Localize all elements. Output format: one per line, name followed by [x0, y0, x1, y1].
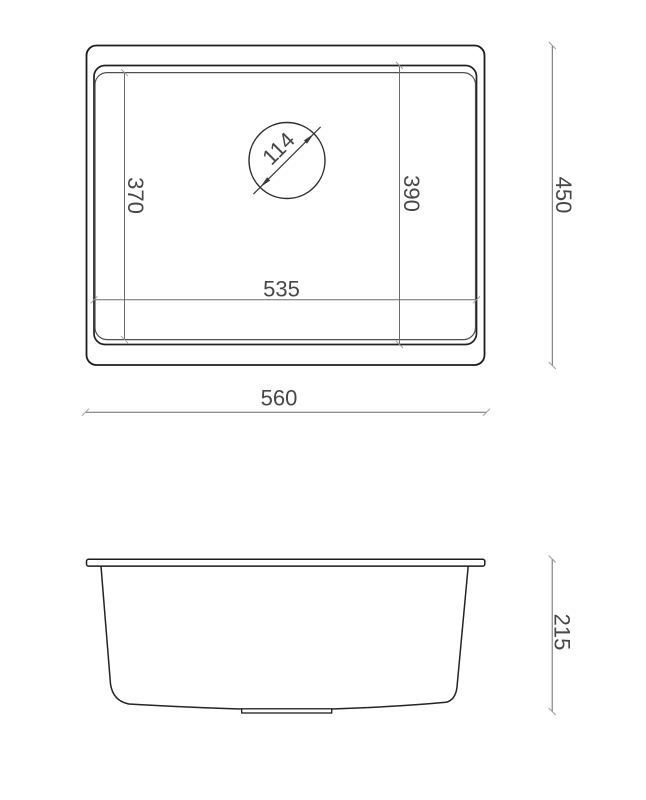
svg-text:114: 114	[257, 127, 299, 169]
svg-text:450: 450	[551, 177, 576, 214]
svg-text:215: 215	[549, 614, 574, 651]
svg-text:370: 370	[123, 177, 148, 214]
svg-text:560: 560	[261, 386, 298, 411]
svg-text:390: 390	[399, 175, 424, 212]
svg-text:535: 535	[263, 277, 300, 302]
